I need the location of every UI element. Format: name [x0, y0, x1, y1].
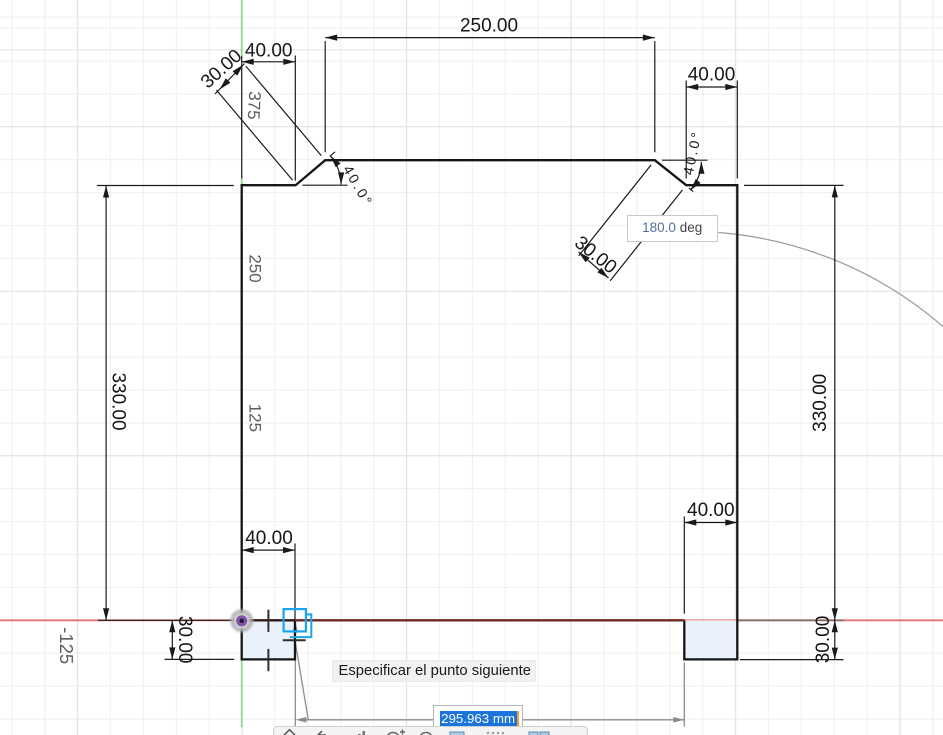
svg-text:40.00: 40.00: [688, 65, 736, 86]
svg-text:330.00: 330.00: [810, 374, 831, 432]
svg-text:40.00: 40.00: [245, 528, 293, 549]
svg-text:125: 125: [245, 404, 264, 432]
svg-text:40.00: 40.00: [245, 41, 293, 62]
svg-text:330.00: 330.00: [107, 372, 128, 430]
svg-text:40.00: 40.00: [687, 500, 735, 521]
svg-text:30.00: 30.00: [174, 616, 195, 664]
svg-text:40.0°: 40.0°: [340, 162, 377, 209]
svg-text:250: 250: [245, 254, 264, 282]
svg-text:250.00: 250.00: [460, 16, 518, 37]
svg-text:30.00: 30.00: [813, 616, 834, 664]
svg-text:30.00: 30.00: [570, 232, 620, 278]
svg-text:-125: -125: [56, 627, 77, 664]
svg-text:375: 375: [244, 91, 264, 120]
